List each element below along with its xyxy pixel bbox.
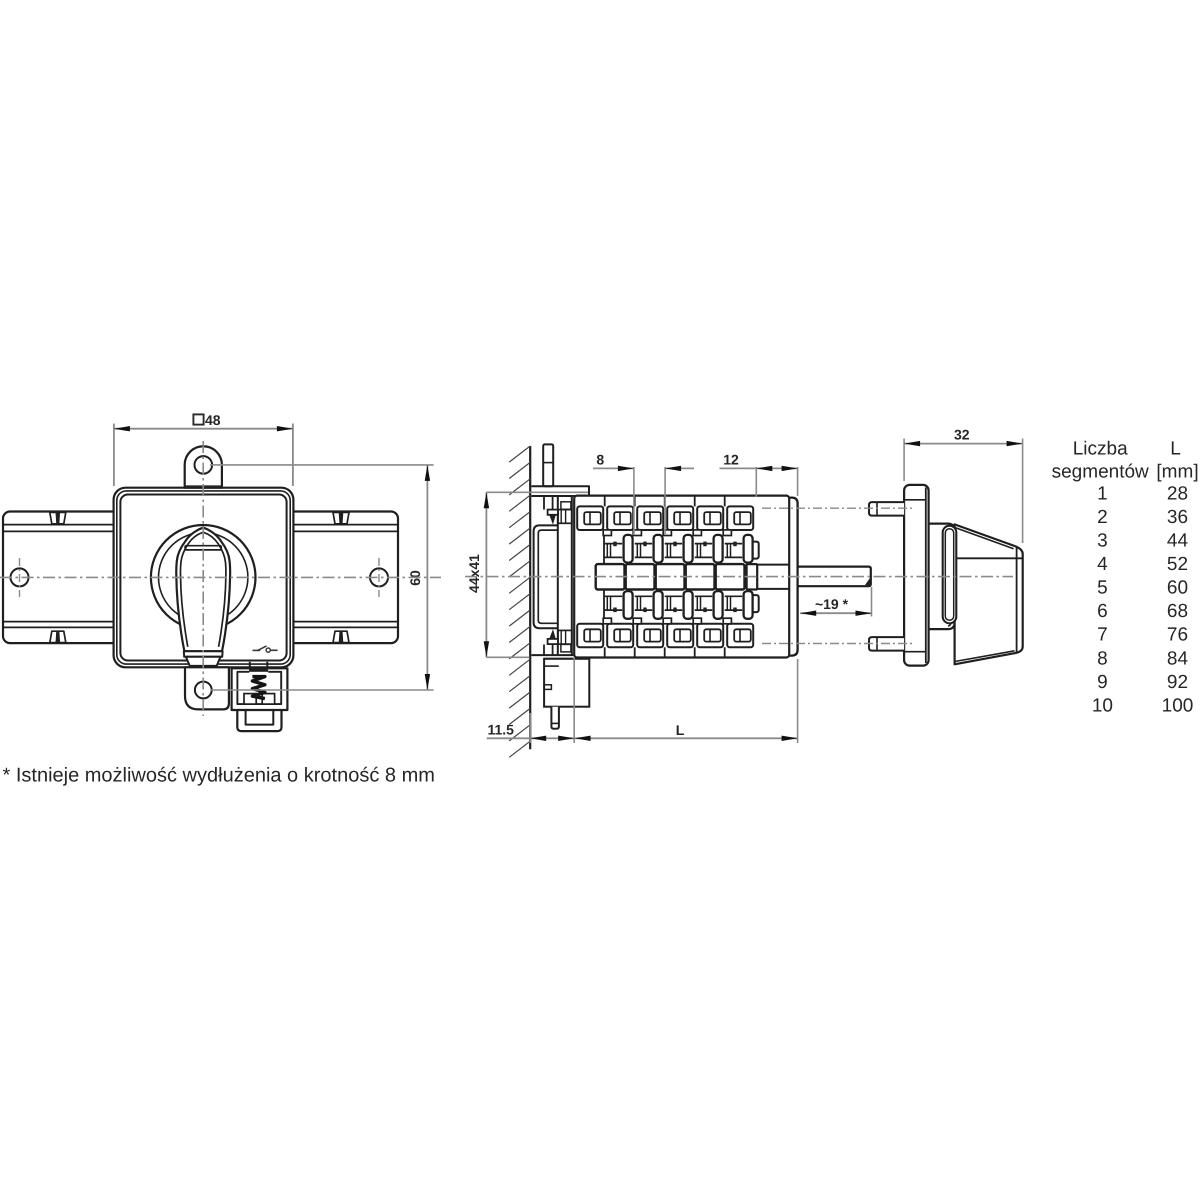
svg-text:36: 36 xyxy=(1167,507,1188,528)
svg-text:68: 68 xyxy=(1167,601,1188,622)
svg-text:44x41: 44x41 xyxy=(466,554,482,593)
svg-text:52: 52 xyxy=(1167,554,1188,575)
svg-text:5: 5 xyxy=(1097,578,1108,599)
svg-text:28: 28 xyxy=(1167,483,1188,504)
svg-text:L: L xyxy=(676,722,685,738)
svg-text:1: 1 xyxy=(1097,483,1108,504)
svg-text:92: 92 xyxy=(1167,672,1188,693)
svg-text:segmentów: segmentów xyxy=(1052,462,1149,483)
svg-text:10: 10 xyxy=(1092,695,1113,716)
svg-text:* Istnieje możliwość wydłużeni: * Istnieje możliwość wydłużenia o krotno… xyxy=(3,765,435,787)
svg-text:8: 8 xyxy=(596,452,604,468)
svg-text:48: 48 xyxy=(205,412,221,428)
svg-text:60: 60 xyxy=(1167,578,1188,599)
svg-text:84: 84 xyxy=(1167,648,1189,669)
svg-text:2: 2 xyxy=(1097,507,1108,528)
svg-text:100: 100 xyxy=(1162,695,1194,716)
svg-text:44: 44 xyxy=(1167,530,1189,551)
svg-text:[mm]: [mm] xyxy=(1156,462,1198,483)
svg-text:~19 *: ~19 * xyxy=(815,596,849,612)
svg-text:76: 76 xyxy=(1167,625,1188,646)
svg-text:4: 4 xyxy=(1097,554,1108,575)
svg-text:6: 6 xyxy=(1097,601,1108,622)
svg-text:12: 12 xyxy=(723,452,739,468)
svg-text:3: 3 xyxy=(1097,530,1108,551)
svg-text:32: 32 xyxy=(954,427,970,443)
svg-text:8: 8 xyxy=(1097,648,1108,669)
svg-text:11.5: 11.5 xyxy=(487,722,514,738)
svg-text:L: L xyxy=(1170,439,1181,460)
svg-text:Liczba: Liczba xyxy=(1073,439,1128,460)
svg-text:9: 9 xyxy=(1097,672,1108,693)
svg-text:7: 7 xyxy=(1097,625,1108,646)
